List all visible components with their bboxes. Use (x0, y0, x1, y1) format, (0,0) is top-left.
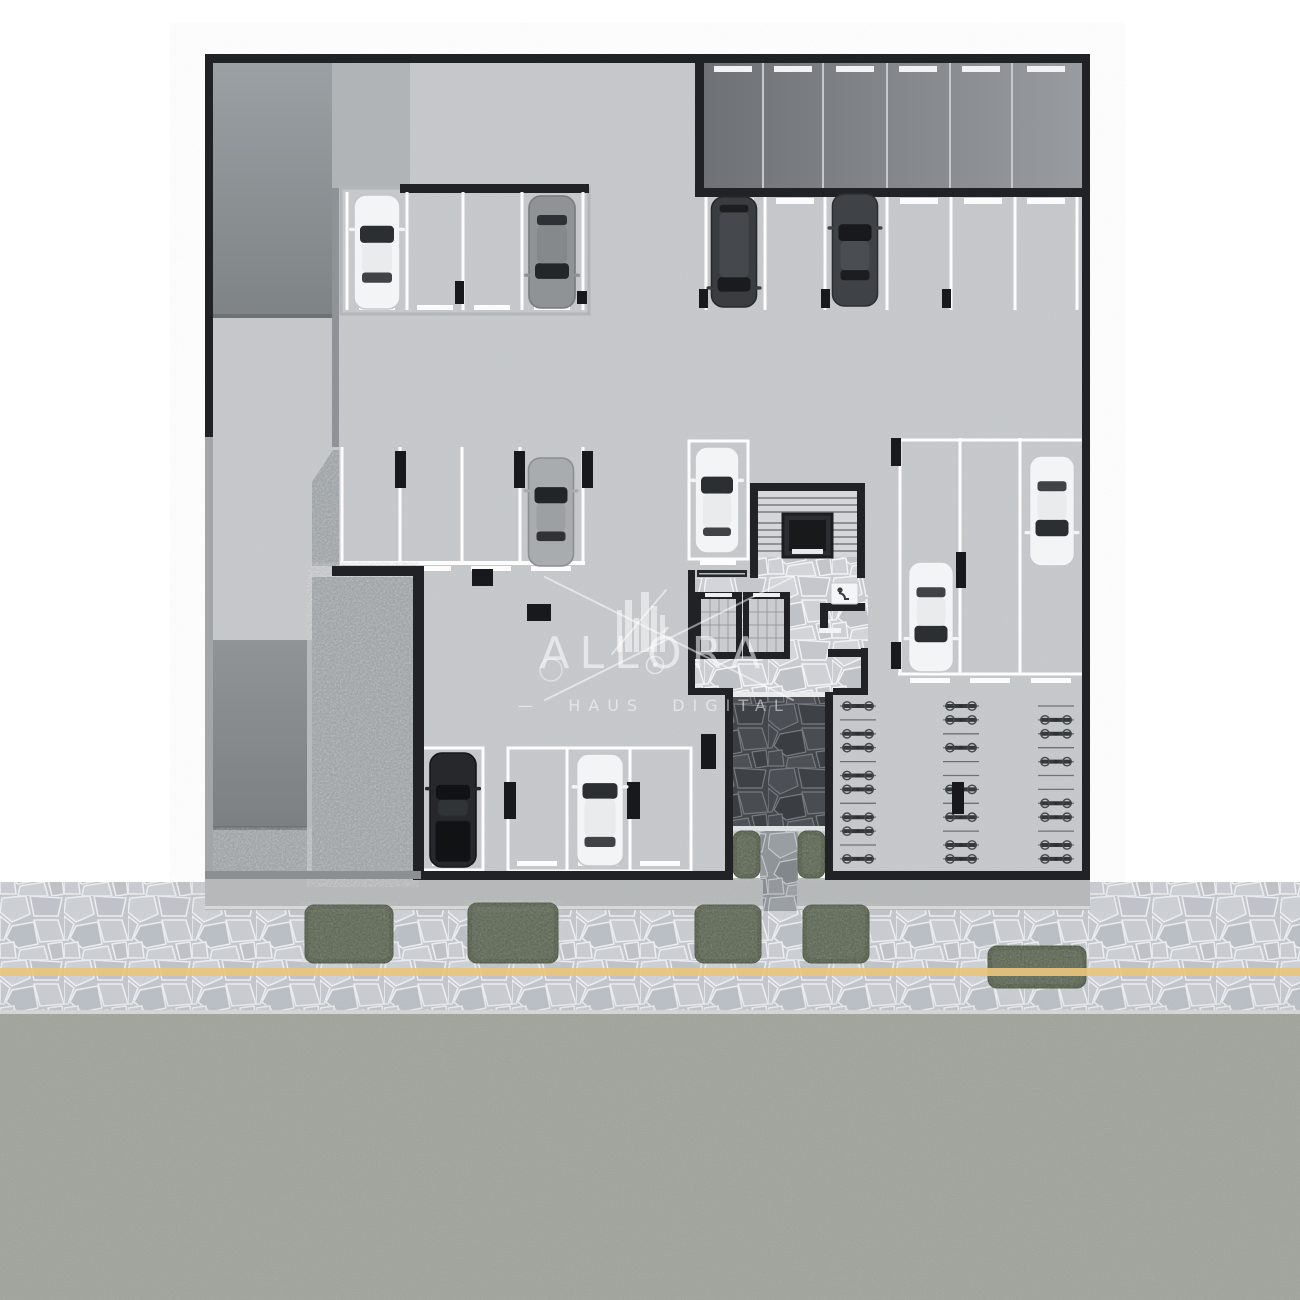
pillar (891, 438, 901, 466)
pillar (395, 451, 406, 488)
entrance-plant (798, 831, 825, 878)
street (0, 878, 1300, 1300)
shrub (305, 905, 393, 963)
shrub (803, 905, 869, 963)
elevator-lobby (688, 570, 868, 695)
car-suv-gray (524, 196, 580, 308)
shrub (988, 946, 1086, 988)
pillar (577, 291, 587, 304)
car-hatch-white (690, 447, 744, 553)
pillar (504, 782, 516, 819)
partition-wall-thin (332, 188, 339, 447)
threshold-gate (733, 826, 825, 831)
pillar (942, 289, 951, 308)
car-sedan-silver (524, 458, 579, 566)
entrance-plant (733, 831, 760, 878)
pillar (821, 289, 830, 308)
elevator-a (695, 592, 742, 659)
door-leaf (819, 628, 841, 633)
entrance-corridor (725, 692, 833, 880)
car-sedan-dark (828, 194, 883, 306)
floor-plan-render: ALLÓRA — HAUS DIGITAL (0, 0, 1300, 1300)
pillar (701, 734, 716, 769)
upper-parking-band (695, 54, 1082, 197)
car-sedan-white (349, 195, 405, 309)
building (205, 54, 1090, 880)
car-van-darkvan (707, 197, 762, 307)
pillar (627, 782, 640, 819)
pillar (956, 552, 966, 588)
elevator-b (743, 592, 790, 659)
car-suv-white (572, 754, 629, 866)
pillar (582, 451, 593, 488)
entry-path (760, 831, 798, 880)
ramp-edge (213, 314, 332, 318)
pillar (472, 569, 493, 586)
car-sedan-white (904, 562, 959, 672)
pillar (699, 289, 708, 308)
entry-path-street (763, 878, 797, 911)
car-pickup-black (425, 753, 481, 867)
pillar (527, 604, 551, 621)
ramp-shadow-zone (332, 63, 410, 188)
shrub (695, 905, 761, 963)
ramp-area (213, 63, 332, 318)
shrub (468, 903, 558, 963)
pillar (952, 782, 964, 814)
road-center-line (0, 968, 1300, 976)
sidewalk-road-edge (0, 1010, 1300, 1014)
pillar (514, 451, 525, 488)
accessibility-sign (831, 583, 858, 604)
plan-canvas (0, 0, 1300, 1300)
asphalt-texture (0, 1014, 1300, 1300)
pillar (891, 642, 901, 669)
service-pit (213, 640, 307, 826)
car-sedan-white (1025, 456, 1080, 566)
pillar (455, 281, 464, 304)
